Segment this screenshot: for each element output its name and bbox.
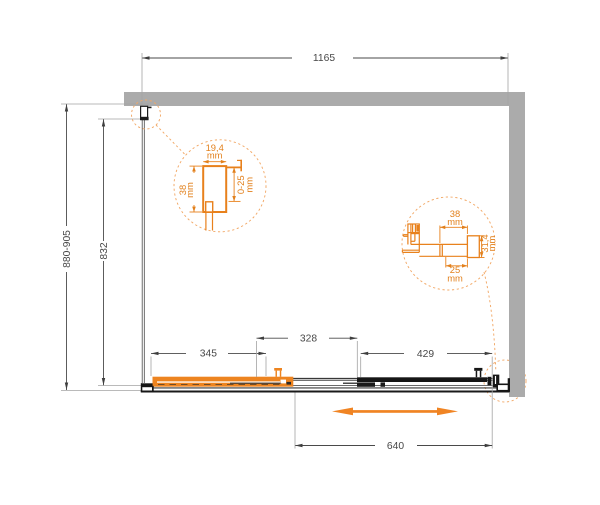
svg-text:mm: mm	[447, 273, 463, 284]
svg-text:1165: 1165	[313, 53, 335, 64]
svg-text:832: 832	[99, 242, 110, 259]
svg-text:328: 328	[300, 333, 317, 344]
svg-text:880-905: 880-905	[62, 230, 73, 268]
svg-text:mm: mm	[243, 177, 254, 193]
svg-text:mm: mm	[207, 149, 223, 160]
svg-text:640: 640	[387, 441, 404, 452]
svg-text:429: 429	[417, 349, 434, 360]
svg-text:mm: mm	[184, 182, 195, 198]
svg-text:mm: mm	[447, 216, 463, 227]
svg-text:345: 345	[200, 349, 217, 360]
svg-text:mm: mm	[486, 236, 497, 252]
